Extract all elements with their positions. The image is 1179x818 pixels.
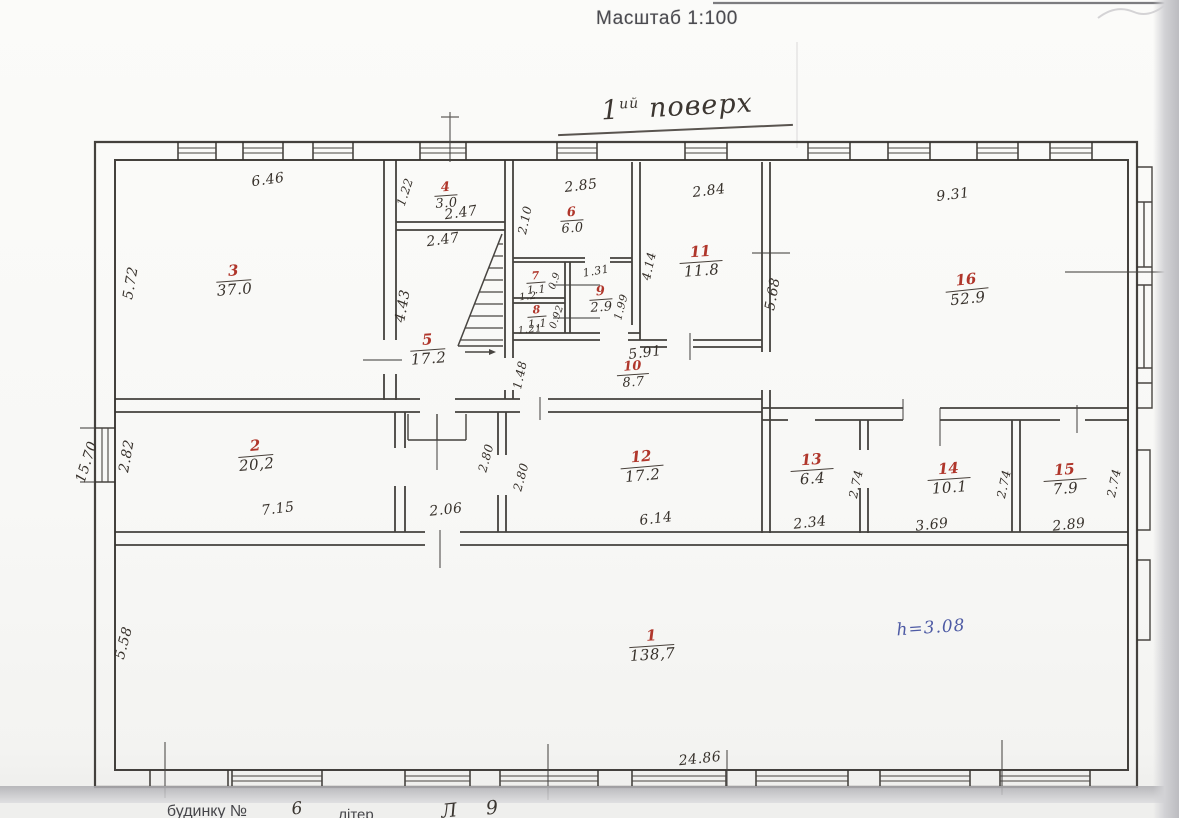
room-15-area: 7.9 [1044,479,1088,499]
room-6-label: 66.0 [559,205,584,236]
room-15-label: 157.9 [1042,461,1087,499]
page-edge-shadow [0,786,1179,803]
footer-handwriting-a: Л [440,799,458,818]
room-6-number: 6 [559,205,583,221]
floor-heading-word: поверх [648,88,753,124]
room-3-label: 337.0 [215,262,253,299]
room-2-area: 20,2 [238,455,275,475]
room-5-label: 517.2 [409,331,447,368]
room-1-label: 1138,7 [628,627,676,665]
room-3-area: 37.0 [216,280,253,300]
footer-handwriting-b: 9 [485,796,499,818]
room-11-area: 11.8 [680,261,724,281]
stair-direction-arrow [489,349,496,355]
staircase [458,234,503,355]
footer-building-label: будинку № [167,803,247,818]
scale-title: Масштаб 1:100 [596,8,738,30]
dim-room7-width: 1.2 [519,291,537,304]
floor-heading-number: 1 [600,95,620,127]
room-16-label: 1652.9 [944,270,990,309]
room-12-label: 1217.2 [619,448,665,487]
room-9-area: 2.9 [589,299,613,316]
room-10-label: 108.7 [616,359,650,391]
floor-plan-drawing [0,0,1179,818]
room-9-label: 92.9 [588,284,613,315]
footer-building-number: 6 [291,798,304,818]
room-1-area: 138,7 [629,645,676,665]
room-11-label: 1111.8 [678,243,723,281]
room-4-number: 4 [433,180,457,196]
room-9-number: 9 [588,284,612,300]
room-14-area: 10.1 [928,478,972,498]
scan-right-edge [1153,0,1179,818]
room-13-label: 136.4 [789,451,834,489]
scanned-floor-plan-page: Масштаб 1:100 1ий поверх 337.0 43.0 517.… [0,0,1179,818]
room-6-area: 6.0 [560,220,584,237]
room-5-area: 17.2 [410,349,447,369]
floor-heading-suffix: ий [619,95,640,112]
footer-letter-label: літер [338,807,373,818]
room-2-label: 220,2 [237,437,275,475]
room-14-label: 1410.1 [926,460,971,498]
room-10-area: 8.7 [617,374,650,391]
interior-walls [115,160,1128,545]
room-13-area: 6.4 [791,469,835,489]
